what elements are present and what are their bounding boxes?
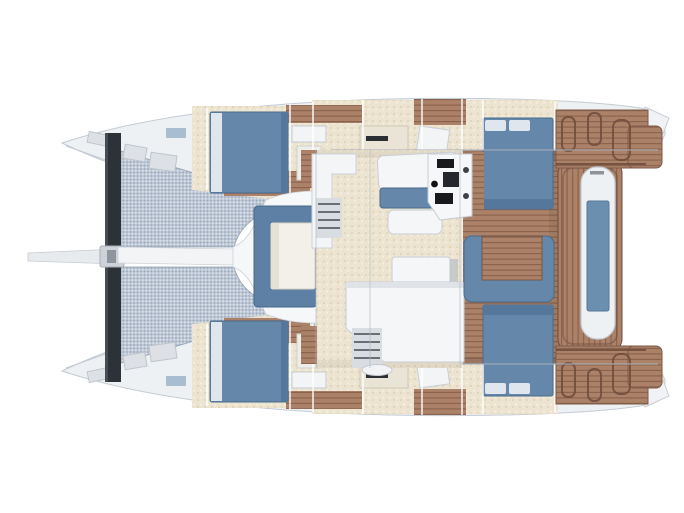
- swim-platform-capsule: [581, 167, 615, 339]
- helm-knob: [463, 167, 469, 173]
- helm-knob: [463, 193, 469, 199]
- steering-wheel-hub: [431, 181, 438, 188]
- coffee-table-shadow: [450, 259, 458, 283]
- foredeck-walkway: [118, 247, 234, 265]
- catamaran-deck-plan: [0, 0, 684, 513]
- cockpit-dining: [464, 236, 554, 302]
- instrument-panel: [443, 172, 459, 187]
- helm-wood-strip: [472, 152, 484, 212]
- capsule-blue-insert: [587, 201, 609, 311]
- bowsprit: [28, 246, 124, 267]
- galley-counter-edge: [346, 282, 464, 288]
- forward-cockpit-hatch: [254, 206, 317, 307]
- instrument-screen: [435, 193, 453, 204]
- companionway-steps-starboard: [352, 328, 382, 368]
- dinette-bench-white: [388, 210, 442, 234]
- capsule-latch: [590, 171, 604, 175]
- companionway-steps-port: [316, 198, 342, 238]
- hatch-inner-shade: [271, 223, 279, 289]
- helm-station: [428, 152, 484, 220]
- instrument-screen: [437, 159, 454, 168]
- wood-corner-starboard: [301, 326, 317, 364]
- coffee-table: [392, 257, 458, 283]
- cockpit-table: [482, 236, 542, 280]
- round-table: [362, 365, 392, 376]
- salon: [301, 150, 484, 376]
